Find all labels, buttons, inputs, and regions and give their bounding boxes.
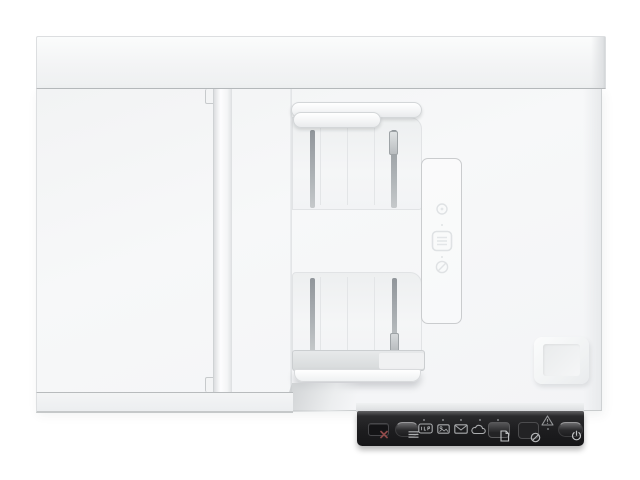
warning-led-dot [547, 428, 549, 430]
output-guide-slot-left [310, 278, 315, 352]
separator-dot [441, 256, 443, 258]
input-guide-slider [389, 131, 398, 155]
led-dot [442, 419, 444, 421]
picture-icon [437, 424, 450, 434]
scan-button [488, 422, 510, 438]
led-dot [497, 419, 499, 421]
top-cover-bevel [591, 37, 605, 88]
tray-groove [374, 277, 375, 353]
led-dot [479, 419, 481, 421]
tray-groove [320, 277, 321, 353]
settings-button [518, 422, 539, 439]
feed-mode-button [395, 422, 419, 437]
front-edge-strip [36, 392, 293, 413]
warning-triangle-icon [541, 415, 554, 426]
cancel-button [368, 423, 389, 436]
product-photo-scanner-top-view [0, 0, 640, 480]
pdf-badge-icon [418, 423, 433, 434]
tray-groove [347, 122, 348, 205]
input-guide-slot-left [310, 130, 315, 208]
led-dot [423, 419, 425, 421]
hinge-pad [534, 337, 589, 384]
envelope-icon [454, 424, 468, 434]
tray-groove [347, 277, 348, 353]
cloud-icon [471, 424, 487, 435]
hinge-pad-inner [543, 344, 580, 376]
instruction-panel [421, 158, 462, 324]
paper-stop-bar-highlight [379, 353, 424, 369]
scanner-top-cover [36, 36, 606, 89]
separator-dot [441, 224, 443, 226]
paper-stop-bar [292, 350, 425, 371]
tray-groove [320, 122, 321, 205]
tray-groove [374, 122, 375, 205]
led-dot [460, 419, 462, 421]
control-panel [357, 411, 584, 446]
power-button [558, 422, 583, 437]
output-tray-shadow [283, 383, 362, 412]
lid-hinge-rail [213, 89, 232, 393]
output-tray-lip [294, 369, 421, 382]
front-paper-guide-bar [293, 112, 381, 128]
